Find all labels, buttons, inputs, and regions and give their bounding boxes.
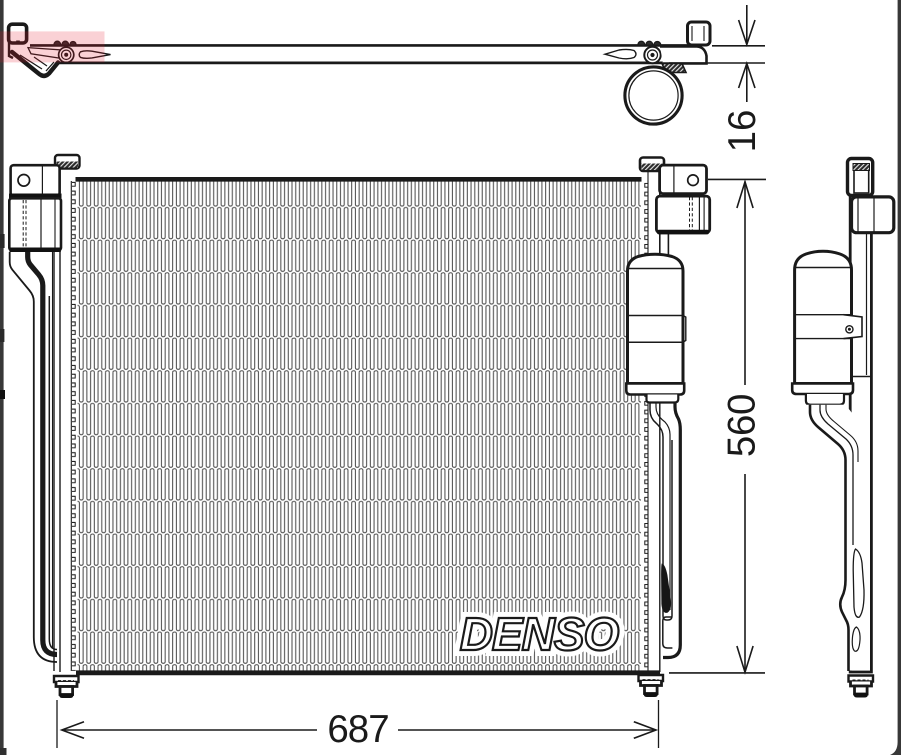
svg-text:687: 687 bbox=[327, 708, 388, 751]
svg-text:DENSO: DENSO bbox=[460, 608, 620, 660]
svg-text:560: 560 bbox=[721, 394, 764, 457]
svg-text:16: 16 bbox=[721, 110, 764, 153]
